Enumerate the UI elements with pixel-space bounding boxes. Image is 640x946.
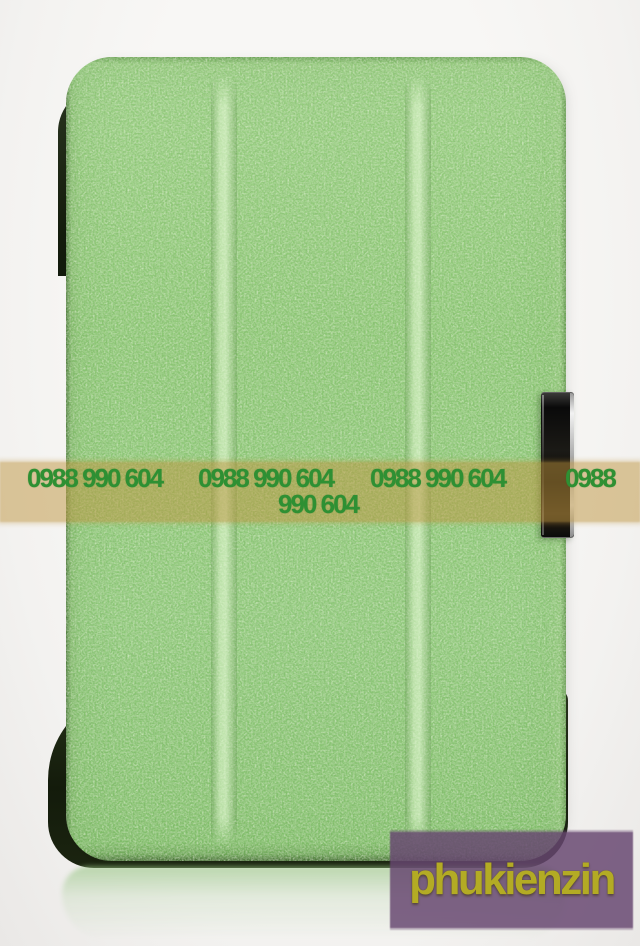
silk-texture: [66, 57, 566, 861]
case-front-flap: [66, 57, 566, 861]
brand-badge: phukienzin: [390, 832, 633, 928]
brand-label: phukienzin: [409, 855, 614, 905]
watermark-band: 0988 990 604 0988 990 604 0988 990 604 0…: [0, 460, 640, 524]
product-photo: 0988 990 604 0988 990 604 0988 990 604 0…: [0, 0, 640, 946]
watermark-phone: 0988 990 604: [198, 465, 333, 491]
watermark-phone: 0988 990 604: [27, 465, 162, 491]
watermark-phone: 0988 990 604: [370, 465, 505, 491]
watermark-phone: 0988: [565, 465, 615, 491]
watermark-phone: 990 604: [278, 491, 358, 517]
